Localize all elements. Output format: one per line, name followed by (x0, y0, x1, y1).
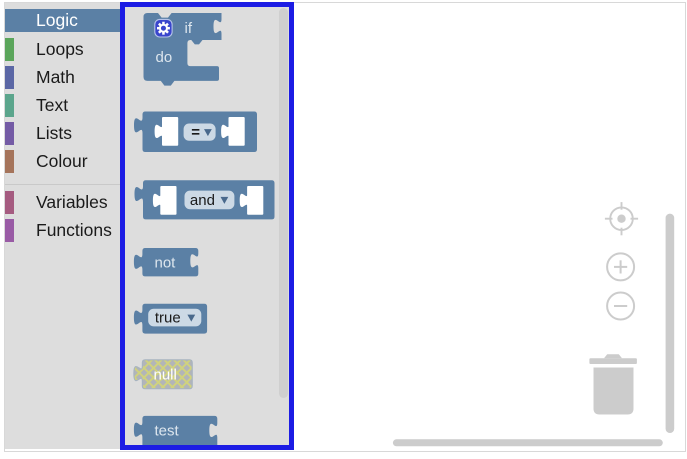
svg-text:and: and (190, 192, 215, 209)
svg-text:do: do (156, 49, 173, 66)
svg-text:not: not (155, 254, 177, 271)
svg-text:null: null (154, 367, 177, 384)
svg-text:test: test (155, 423, 180, 440)
svg-text:true: true (155, 310, 181, 327)
svg-text:if: if (185, 20, 193, 37)
svg-text:=: = (191, 124, 200, 141)
